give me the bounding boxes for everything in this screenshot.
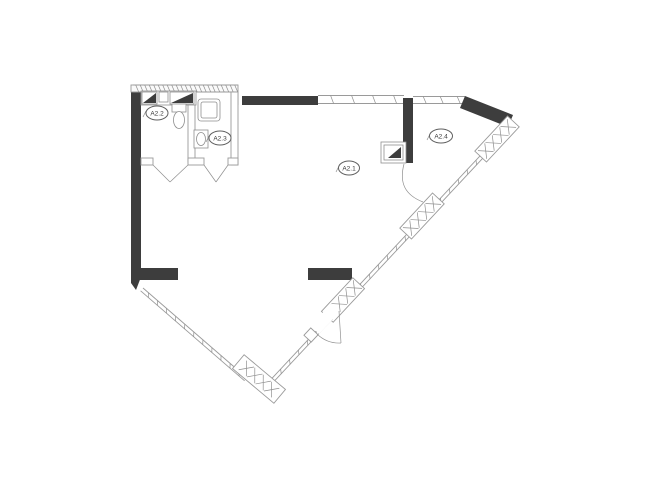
room-label-a2-3: A2.3 bbox=[206, 131, 231, 145]
room-label-a2-4-text: A2.4 bbox=[434, 134, 448, 141]
top-wall-segment bbox=[242, 96, 318, 105]
bath-door-leaf-a bbox=[153, 165, 170, 182]
glazed-facades bbox=[141, 126, 511, 392]
washbasin-bowl bbox=[197, 133, 206, 146]
left-wing-wall bbox=[138, 268, 178, 280]
bath-wall-stub-1 bbox=[141, 158, 153, 165]
room-label-a2-3-text: A2.3 bbox=[213, 136, 227, 143]
floor-plan-canvas: A2.2 A2.3 A2.1 A2.4 bbox=[0, 0, 653, 489]
door-swing-arc bbox=[317, 334, 341, 343]
facade-pier-1 bbox=[475, 116, 519, 162]
floor-plan-drawing: A2.2 A2.3 A2.1 A2.4 bbox=[0, 0, 653, 489]
room-label-a2-2: A2.2 bbox=[143, 106, 168, 120]
room-label-a2-1-text: A2.1 bbox=[342, 166, 356, 173]
interior-wing-wall bbox=[308, 268, 352, 280]
top-window-band-1 bbox=[318, 96, 404, 104]
terrace-door bbox=[402, 164, 423, 202]
toilet-bowl bbox=[174, 112, 185, 129]
facade-piers bbox=[233, 116, 520, 403]
shower-door-leaf-b bbox=[216, 165, 228, 182]
room-label-a2-1: A2.1 bbox=[336, 161, 360, 175]
terrace-door-swing bbox=[402, 164, 423, 202]
toilet-tank bbox=[172, 104, 186, 112]
top-window-band-2 bbox=[413, 97, 465, 104]
room-label-a2-2-text: A2.2 bbox=[150, 111, 164, 118]
shower-room-wall bbox=[231, 92, 238, 165]
counter-box bbox=[159, 92, 168, 102]
room-label-a2-4: A2.4 bbox=[427, 129, 453, 143]
shower-door-leaf-a bbox=[204, 165, 216, 182]
bath-wall-stub-2 bbox=[188, 158, 204, 165]
door-leaf bbox=[339, 311, 341, 343]
bath-wall-stub-3 bbox=[228, 158, 238, 165]
left-wall bbox=[131, 85, 141, 290]
left-facade-glazing bbox=[141, 288, 247, 381]
bath-door-leaf-b bbox=[170, 165, 188, 182]
facade-pier-corner bbox=[233, 355, 286, 403]
facade-pier-2 bbox=[400, 193, 444, 239]
right-facade-glazing bbox=[262, 126, 511, 392]
shower-tray-inner bbox=[201, 102, 217, 118]
